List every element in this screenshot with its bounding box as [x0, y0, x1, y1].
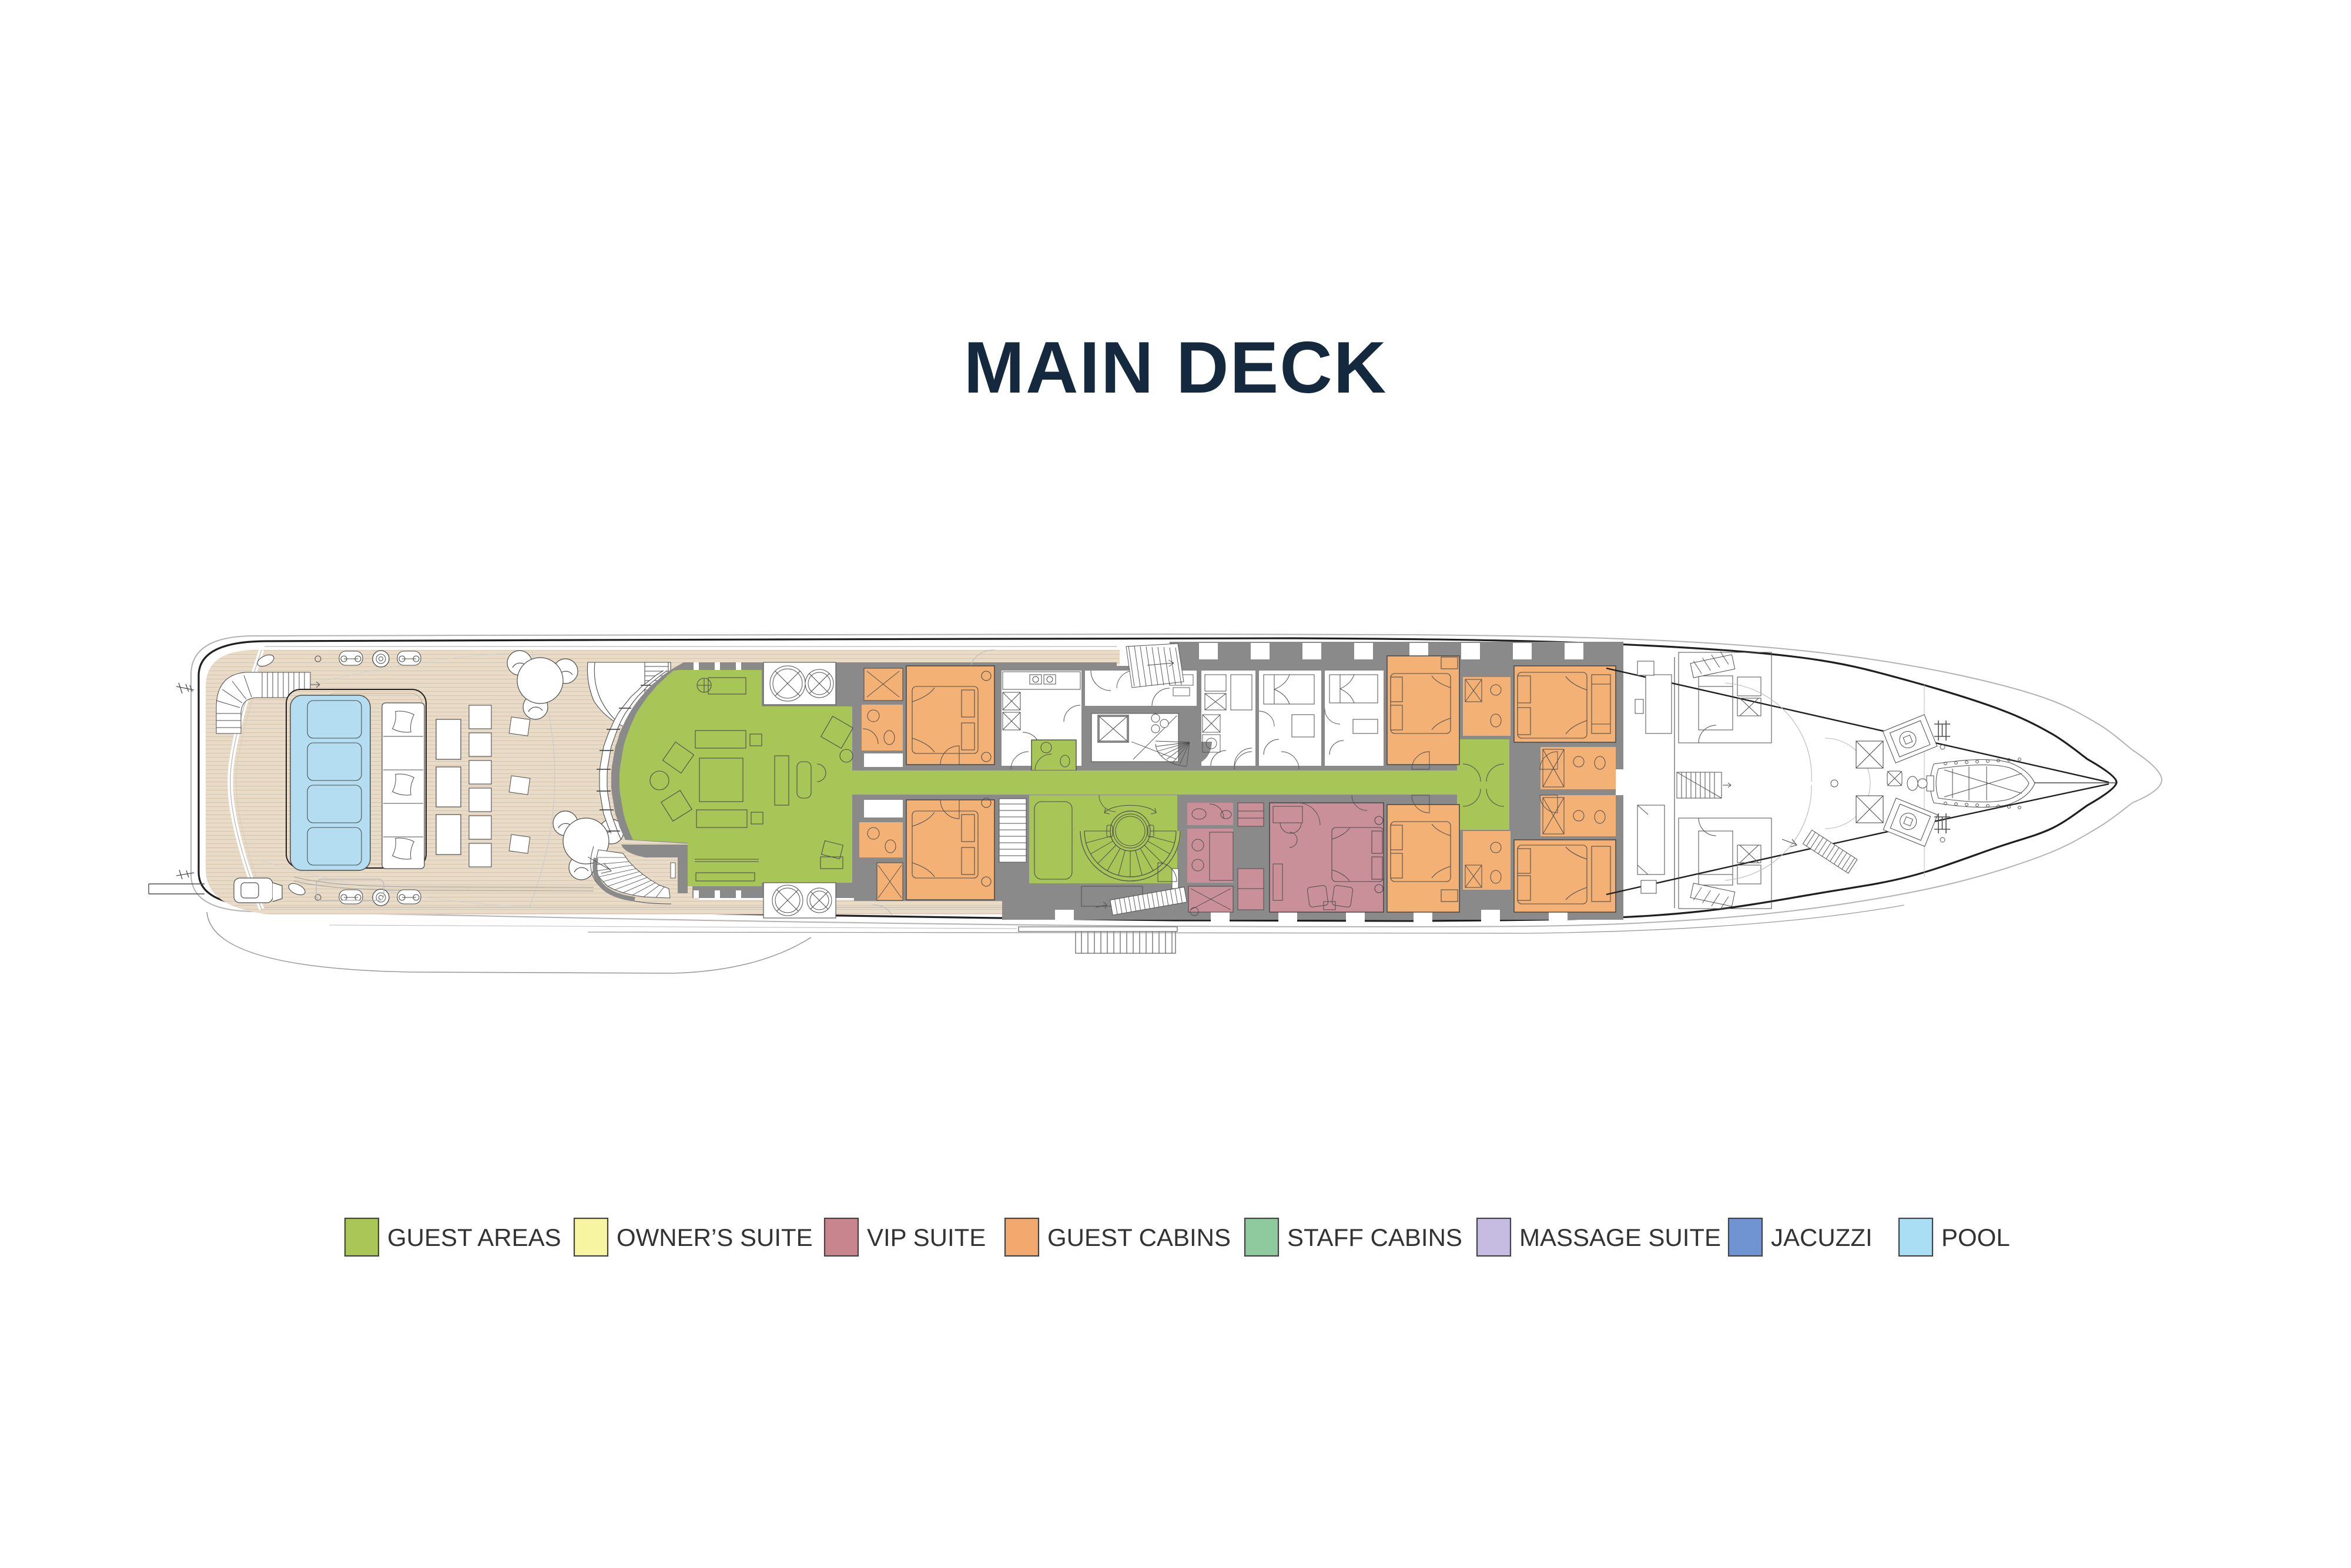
svg-text:POOL: POOL: [1941, 1224, 2010, 1251]
svg-text:MAIN DECK: MAIN DECK: [964, 327, 1388, 408]
svg-text:MASSAGE SUITE: MASSAGE SUITE: [1519, 1224, 1721, 1251]
svg-text:VIP SUITE: VIP SUITE: [867, 1224, 986, 1251]
svg-text:GUEST AREAS: GUEST AREAS: [387, 1224, 561, 1251]
svg-text:JACUZZI: JACUZZI: [1771, 1224, 1873, 1251]
svg-text:STAFF CABINS: STAFF CABINS: [1287, 1224, 1462, 1251]
svg-text:OWNER’S SUITE: OWNER’S SUITE: [617, 1224, 813, 1251]
svg-text:GUEST CABINS: GUEST CABINS: [1047, 1224, 1231, 1251]
